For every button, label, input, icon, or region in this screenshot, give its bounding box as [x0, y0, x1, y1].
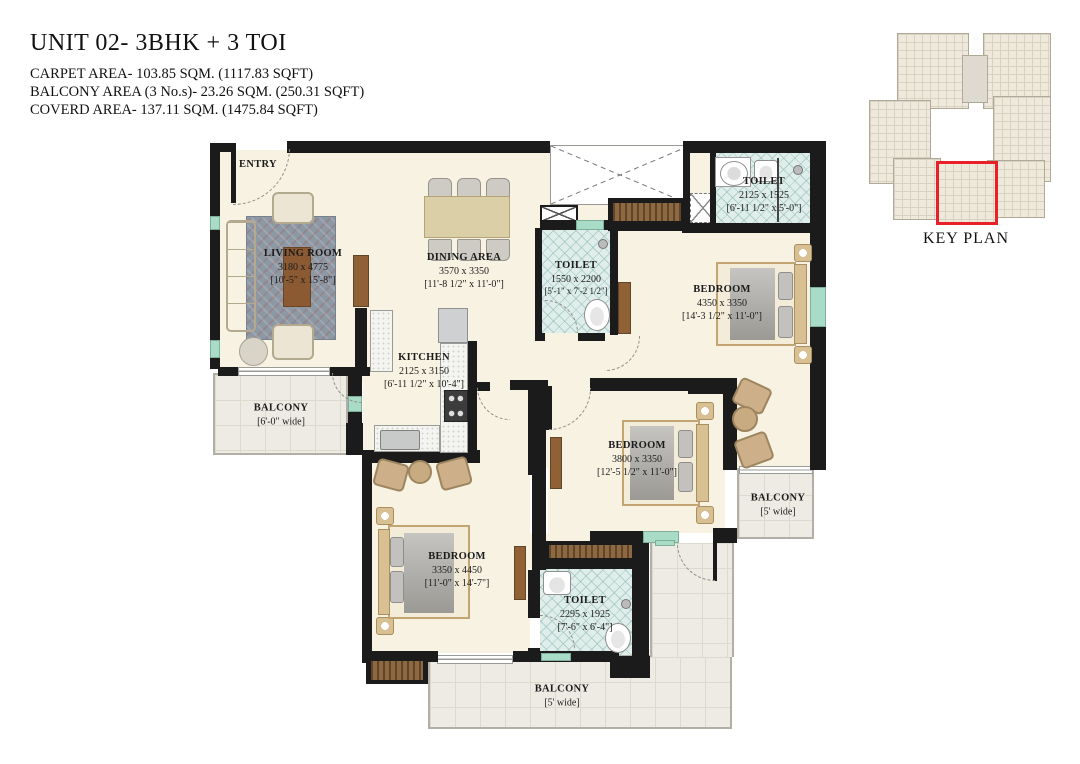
sofa — [226, 220, 256, 332]
wall-segment — [608, 223, 685, 231]
carpet-area-line: CARPET AREA- 103.85 SQM. (1117.83 SQFT) — [30, 66, 313, 83]
window-living-2 — [210, 340, 220, 358]
key-plan-block — [893, 158, 941, 220]
sitting-table — [408, 460, 432, 484]
nightstand — [376, 617, 394, 635]
toilet3-label: TOILET 2295 x 1925 [7'-6" x 6'-4"] — [557, 594, 612, 634]
fridge — [438, 308, 468, 343]
key-plan-block — [897, 33, 969, 109]
bed-headboard — [794, 264, 807, 344]
bedroom3-label: BEDROOM 3350 x 4450 [11'-0" x 14'-7"] — [425, 550, 490, 590]
wall-segment — [688, 382, 735, 394]
shower-toilet1 — [598, 239, 608, 249]
shower-toilet3 — [621, 599, 631, 609]
wall-segment — [467, 341, 477, 453]
key-plan — [862, 20, 1058, 230]
wall-segment — [688, 141, 818, 153]
slider-living-balcony — [238, 367, 330, 376]
wall-segment — [713, 528, 737, 543]
bed-pillow — [778, 272, 793, 300]
bed-pillow — [390, 537, 404, 567]
wardrobe-bedroom3 — [371, 661, 423, 680]
balcony-right-label: BALCONY [5' wide] — [751, 492, 806, 519]
lift-shaft — [550, 145, 690, 205]
wall-segment — [810, 396, 826, 470]
armchair-top — [272, 192, 314, 224]
covered-area-line: COVERD AREA- 137.11 SQM. (1475.84 SQFT) — [30, 102, 318, 119]
bed-pillow — [778, 306, 793, 338]
nightstand — [794, 346, 812, 364]
wall-segment — [528, 383, 546, 475]
window-toilet3 — [541, 653, 571, 661]
tv-unit — [353, 255, 369, 307]
bed-pillow — [678, 430, 693, 458]
wall-segment — [578, 333, 605, 341]
armchair-bottom — [272, 324, 314, 360]
nightstand — [696, 506, 714, 524]
living-room-label: LIVING ROOM 3180 x 4775 [10'-5" x 15'-8"… — [264, 247, 342, 287]
bedroom1-label: BEDROOM 4350 x 3350 [14'-3 1/2" x 11'-0"… — [682, 283, 762, 323]
page-title: UNIT 02- 3BHK + 3 TOI — [30, 30, 287, 57]
balcony-bottom-label: BALCONY [5' wide] — [535, 683, 590, 710]
shower-toilet2 — [793, 165, 803, 175]
wall-segment — [682, 223, 818, 233]
stove — [444, 390, 468, 422]
nightstand — [696, 402, 714, 420]
wall-segment — [218, 367, 238, 376]
nightstand — [794, 244, 812, 262]
dresser-bedroom1 — [618, 282, 631, 334]
window-toilet1 — [576, 220, 604, 230]
wall-segment — [810, 141, 826, 396]
wardrobe-bedroom2 — [549, 545, 632, 558]
dresser-bedroom3 — [514, 546, 526, 600]
balcony-area-line: BALCONY AREA (3 No.s)- 23.26 SQM. (250.3… — [30, 84, 364, 101]
wall-segment — [535, 228, 542, 335]
dining-area-label: DINING AREA 3570 x 3350 [11'-8 1/2" x 11… — [424, 251, 504, 291]
kitchen-sink — [380, 430, 420, 450]
wardrobe-bedroom1 — [613, 203, 681, 221]
balcony-left-label: BALCONY [6'-0" wide] — [254, 402, 309, 429]
wall-segment — [362, 453, 372, 663]
kitchen-label: KITCHEN 2125 x 3150 [6'-11 1/2" x 10'-4"… — [384, 351, 464, 391]
wall-segment — [610, 228, 618, 335]
floor-plan-page: UNIT 02- 3BHK + 3 TOI CARPET AREA- 103.8… — [0, 0, 1080, 764]
toilet2-label: TOILET 2125 x 1525 [6'-11 1/2" x 5'-0"] — [727, 175, 802, 215]
slider-bedroom3-balcony — [437, 655, 513, 664]
key-plan-highlight — [936, 161, 998, 225]
entry-label: ENTRY — [239, 158, 277, 172]
key-plan-core — [962, 55, 988, 103]
wall-segment — [535, 333, 545, 341]
wall-segment — [210, 143, 220, 369]
window-bedroom1 — [810, 287, 826, 327]
window-terrace — [655, 540, 675, 546]
nightstand — [376, 507, 394, 525]
key-plan-label: KEY PLAN — [923, 230, 1009, 248]
nook-table — [732, 406, 758, 432]
washbasin-toilet1 — [584, 299, 610, 331]
bed-headboard — [696, 424, 709, 502]
shaft-cross-lines — [551, 146, 689, 204]
pouf — [239, 337, 268, 366]
wall-segment — [528, 570, 540, 618]
dresser-bedroom2 — [550, 437, 562, 489]
toilet1-label: TOILET 1550 x 2200 [5'-1" x 7'-2 1/2"] — [544, 259, 607, 297]
window-living-1 — [210, 216, 220, 230]
wall-segment — [355, 308, 367, 373]
wall-segment — [287, 141, 550, 153]
bed-pillow — [678, 462, 693, 492]
bedroom2-label: BEDROOM 3800 x 3350 [12'-5 1/2" x 11'-0"… — [597, 439, 677, 479]
bed-headboard — [378, 529, 390, 615]
wc-toilet3 — [543, 571, 571, 595]
bed-pillow — [390, 571, 404, 603]
dining-table — [424, 196, 510, 238]
